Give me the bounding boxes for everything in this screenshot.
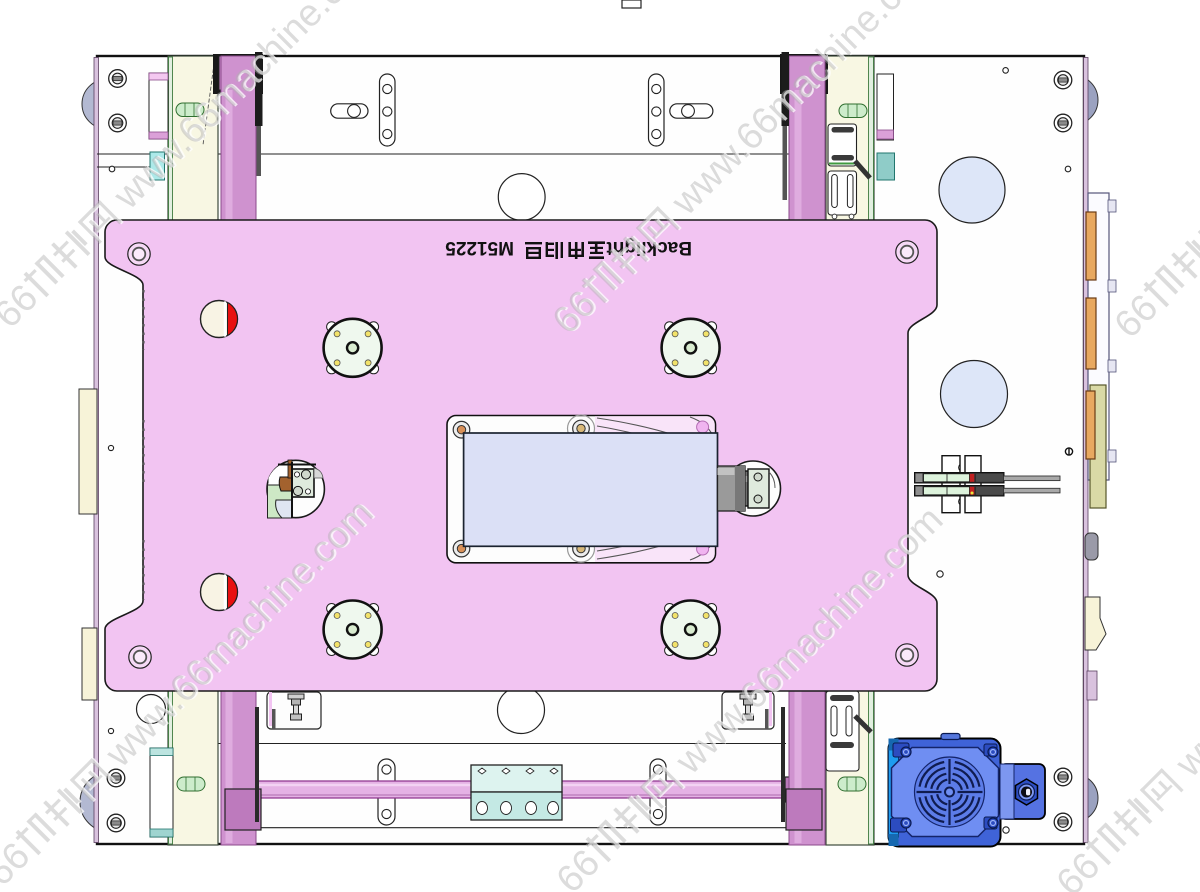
svg-text:M51225: M51225 xyxy=(445,237,514,258)
